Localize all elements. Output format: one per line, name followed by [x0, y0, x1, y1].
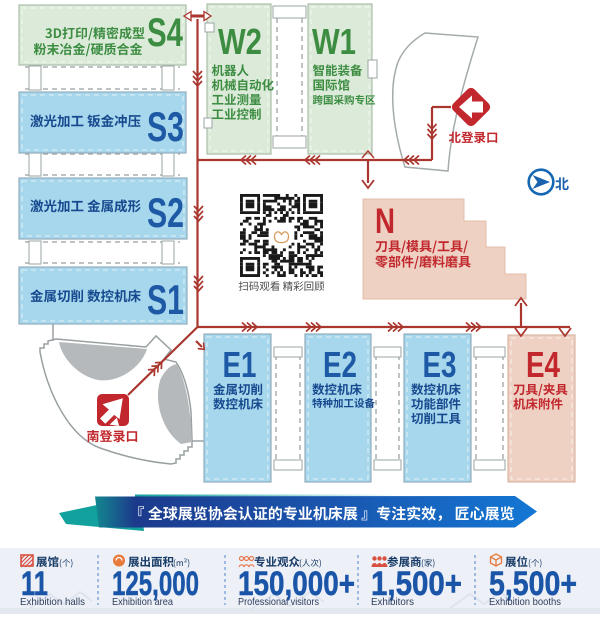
svg-text:S4: S4	[147, 11, 184, 55]
svg-text:N: N	[375, 202, 395, 241]
svg-text:Exhibition area: Exhibition area	[112, 596, 173, 608]
svg-text:Exhibitors: Exhibitors	[371, 596, 414, 608]
svg-text:Professional visitors: Professional visitors	[238, 596, 319, 608]
svg-text:E2: E2	[323, 344, 357, 385]
svg-text:Exhibition booths: Exhibition booths	[489, 596, 561, 608]
svg-text:S3: S3	[147, 103, 184, 150]
svg-text:E1: E1	[223, 344, 257, 385]
svg-text:Exhibition halls: Exhibition halls	[20, 596, 85, 608]
svg-text:S2: S2	[147, 189, 184, 236]
svg-text:W1: W1	[312, 21, 356, 62]
svg-text:E3: E3	[423, 344, 457, 385]
svg-text:S1: S1	[147, 276, 184, 323]
svg-text:E4: E4	[526, 344, 560, 385]
svg-text:W2: W2	[218, 21, 262, 62]
